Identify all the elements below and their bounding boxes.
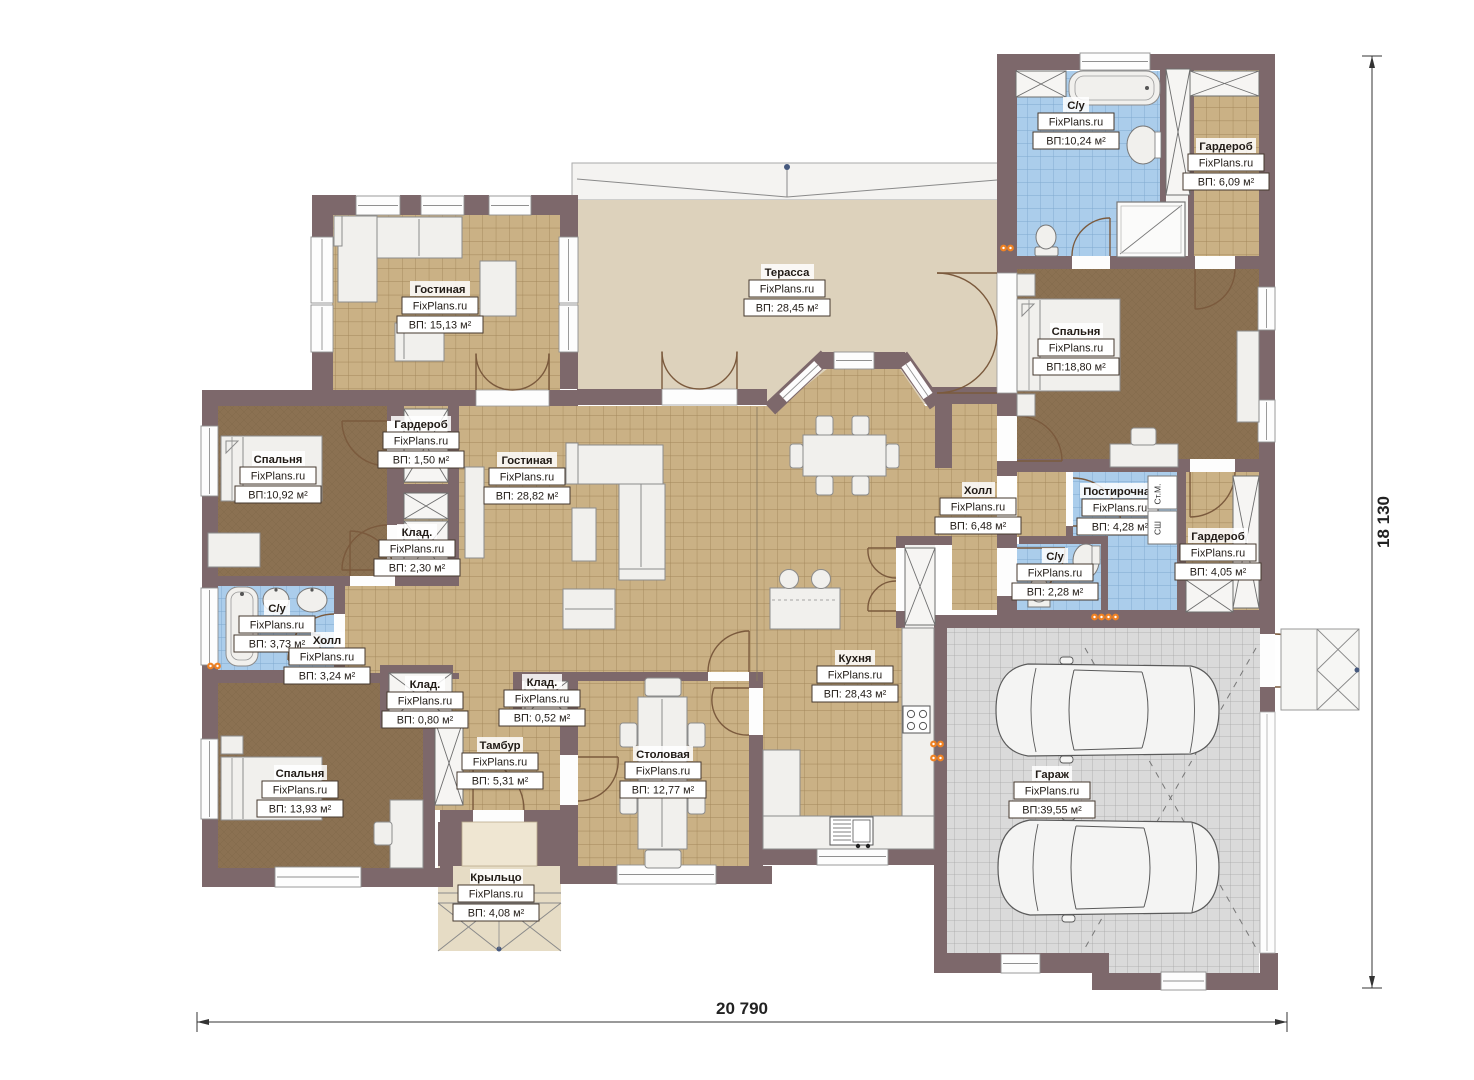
svg-text:FixPlans.ru: FixPlans.ru	[251, 471, 305, 483]
svg-text:Терасса: Терасса	[765, 267, 811, 279]
svg-text:ВП: 6,09 м²: ВП: 6,09 м²	[1198, 177, 1255, 189]
svg-text:Спальня: Спальня	[254, 454, 303, 466]
svg-text:ВП: 12,77 м²: ВП: 12,77 м²	[632, 785, 695, 797]
svg-text:18 130: 18 130	[1374, 496, 1393, 548]
svg-text:Клад.: Клад.	[527, 677, 558, 689]
svg-text:FixPlans.ru: FixPlans.ru	[469, 889, 523, 901]
svg-text:Гардероб: Гардероб	[1191, 531, 1244, 543]
svg-text:Холл: Холл	[964, 485, 992, 497]
svg-text:FixPlans.ru: FixPlans.ru	[1199, 158, 1253, 170]
svg-text:Клад.: Клад.	[410, 679, 441, 691]
svg-text:FixPlans.ru: FixPlans.ru	[300, 652, 354, 664]
svg-text:ВП:39,55 м²: ВП:39,55 м²	[1022, 805, 1082, 817]
svg-text:FixPlans.ru: FixPlans.ru	[1191, 548, 1245, 560]
svg-text:ВП: 2,30 м²: ВП: 2,30 м²	[389, 563, 446, 575]
svg-text:ВП: 28,45 м²: ВП: 28,45 м²	[756, 303, 819, 315]
svg-text:ВП:10,92 м²: ВП:10,92 м²	[248, 490, 308, 502]
svg-text:FixPlans.ru: FixPlans.ru	[398, 696, 452, 708]
svg-text:Гараж: Гараж	[1035, 769, 1070, 781]
svg-text:ВП: 4,08 м²: ВП: 4,08 м²	[468, 908, 525, 920]
svg-text:Гостиная: Гостиная	[501, 455, 552, 467]
svg-text:С/у: С/у	[1067, 100, 1085, 112]
svg-text:Тамбур: Тамбур	[480, 740, 521, 752]
svg-text:FixPlans.ru: FixPlans.ru	[515, 694, 569, 706]
svg-text:Крыльцо: Крыльцо	[470, 872, 522, 884]
svg-text:FixPlans.ru: FixPlans.ru	[473, 757, 527, 769]
svg-text:FixPlans.ru: FixPlans.ru	[500, 472, 554, 484]
svg-text:ВП: 13,93 м²: ВП: 13,93 м²	[269, 804, 332, 816]
svg-text:FixPlans.ru: FixPlans.ru	[1093, 503, 1147, 515]
svg-text:20 790: 20 790	[716, 999, 768, 1018]
svg-text:Постирочная: Постирочная	[1083, 486, 1156, 498]
svg-text:FixPlans.ru: FixPlans.ru	[273, 785, 327, 797]
svg-text:С/у: С/у	[1046, 551, 1064, 563]
svg-text:FixPlans.ru: FixPlans.ru	[1025, 786, 1079, 798]
svg-text:Клад.: Клад.	[402, 527, 433, 539]
svg-text:ВП: 6,48 м²: ВП: 6,48 м²	[950, 521, 1007, 533]
svg-text:FixPlans.ru: FixPlans.ru	[636, 766, 690, 778]
svg-text:FixPlans.ru: FixPlans.ru	[250, 620, 304, 632]
svg-text:ВП: 3,24 м²: ВП: 3,24 м²	[299, 671, 356, 683]
svg-text:FixPlans.ru: FixPlans.ru	[413, 301, 467, 313]
svg-text:ВП: 15,13 м²: ВП: 15,13 м²	[409, 320, 472, 332]
svg-text:Гостиная: Гостиная	[414, 284, 465, 296]
svg-text:ВП: 4,28 м²: ВП: 4,28 м²	[1092, 522, 1149, 534]
svg-text:Спальня: Спальня	[1052, 326, 1101, 338]
svg-text:ВП: 4,05 м²: ВП: 4,05 м²	[1190, 567, 1247, 579]
svg-text:ВП: 5,31 м²: ВП: 5,31 м²	[472, 776, 529, 788]
svg-text:Гардероб: Гардероб	[1199, 141, 1252, 153]
svg-text:ВП: 28,82 м²: ВП: 28,82 м²	[496, 491, 559, 503]
svg-text:Спальня: Спальня	[276, 768, 325, 780]
svg-text:FixPlans.ru: FixPlans.ru	[1049, 117, 1103, 129]
svg-text:Гардероб: Гардероб	[394, 419, 447, 431]
svg-text:ВП: 0,52 м²: ВП: 0,52 м²	[514, 713, 571, 725]
svg-text:FixPlans.ru: FixPlans.ru	[1028, 568, 1082, 580]
svg-text:Холл: Холл	[313, 635, 341, 647]
svg-text:ВП: 28,43 м²: ВП: 28,43 м²	[824, 689, 887, 701]
svg-text:ВП: 2,28 м²: ВП: 2,28 м²	[1027, 587, 1084, 599]
svg-text:FixPlans.ru: FixPlans.ru	[390, 544, 444, 556]
svg-text:СШ: СШ	[1152, 521, 1162, 535]
svg-text:FixPlans.ru: FixPlans.ru	[828, 670, 882, 682]
svg-text:ВП:18,80 м²: ВП:18,80 м²	[1046, 362, 1106, 374]
svg-text:FixPlans.ru: FixPlans.ru	[760, 284, 814, 296]
svg-text:ВП: 1,50 м²: ВП: 1,50 м²	[393, 455, 450, 467]
svg-text:С/у: С/у	[268, 603, 286, 615]
svg-text:Кухня: Кухня	[838, 653, 871, 665]
svg-text:Столовая: Столовая	[636, 749, 690, 761]
svg-text:FixPlans.ru: FixPlans.ru	[1049, 343, 1103, 355]
svg-text:FixPlans.ru: FixPlans.ru	[394, 436, 448, 448]
svg-text:FixPlans.ru: FixPlans.ru	[951, 502, 1005, 514]
svg-text:ВП: 0,80 м²: ВП: 0,80 м²	[397, 715, 454, 727]
svg-text:Ст.М.: Ст.М.	[1152, 484, 1162, 505]
svg-text:ВП:10,24 м²: ВП:10,24 м²	[1046, 136, 1106, 148]
